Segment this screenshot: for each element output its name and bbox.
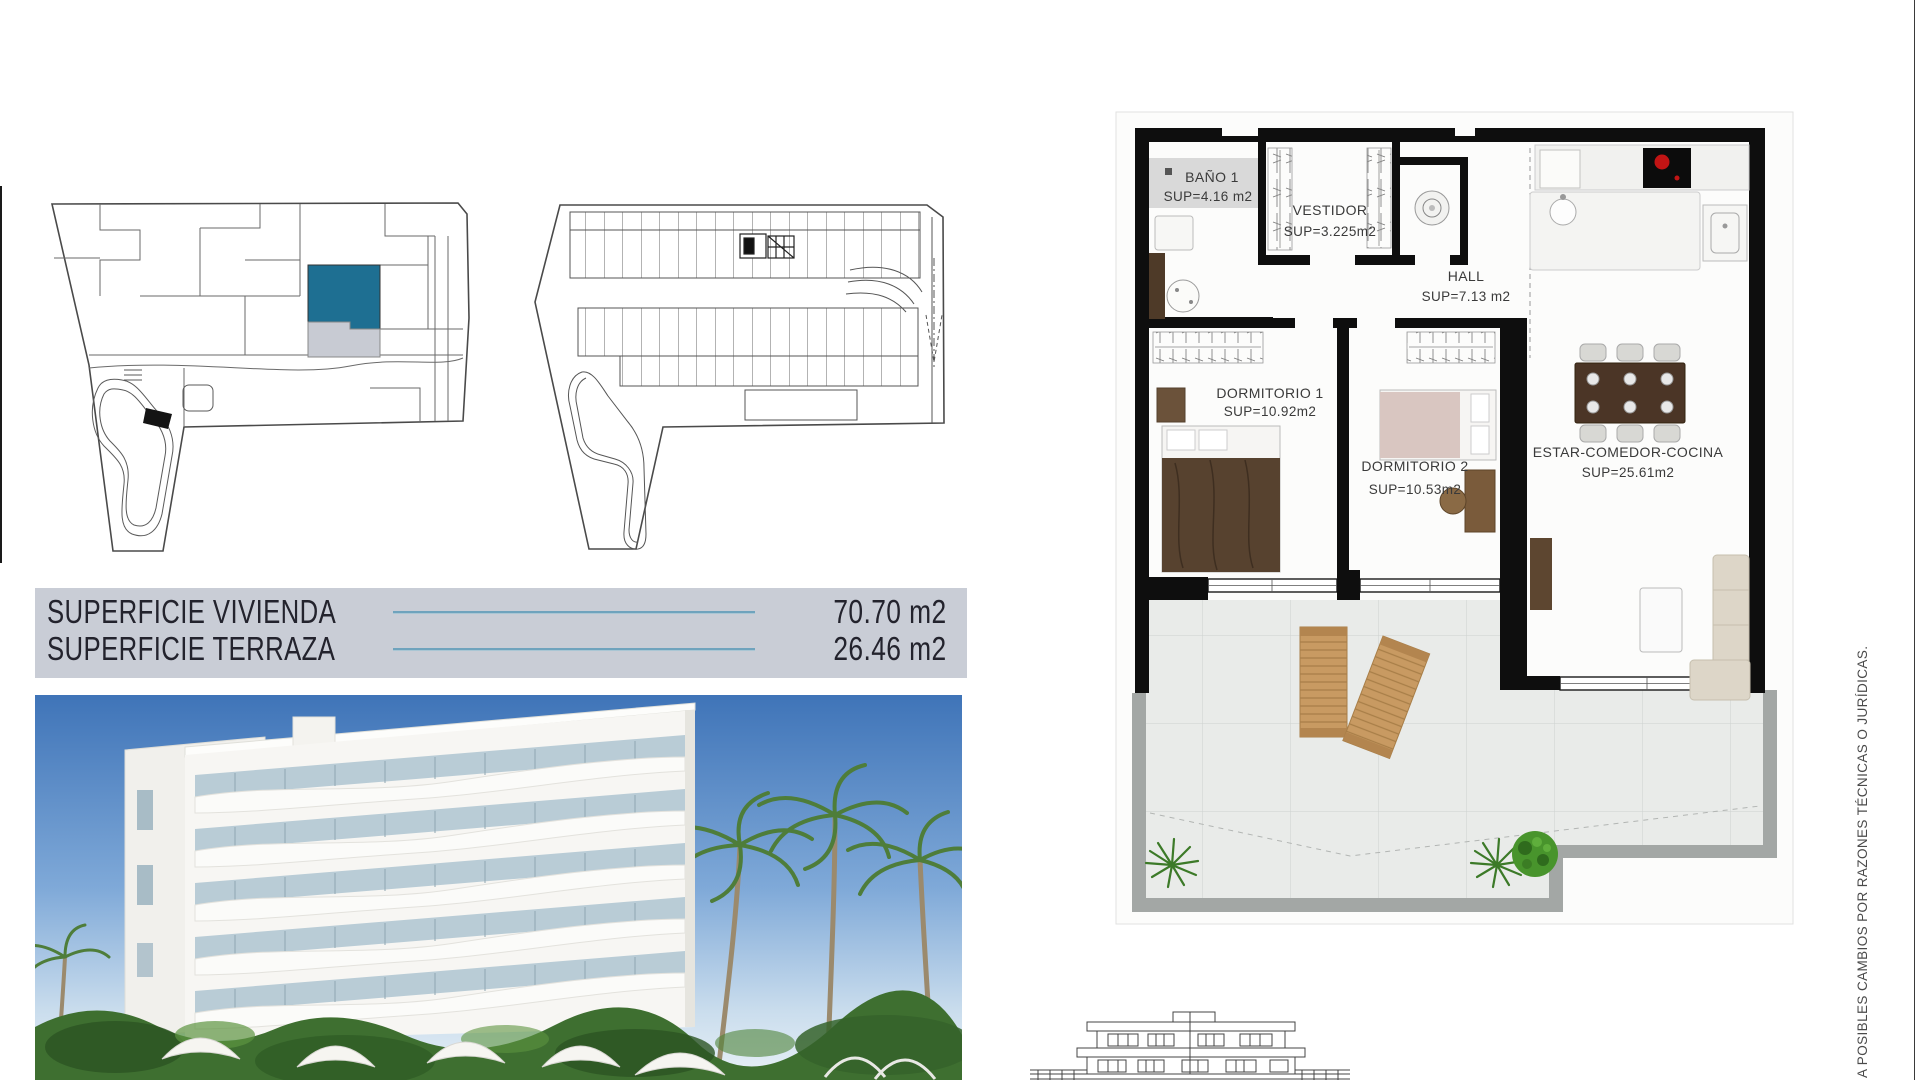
site-plan-key [40, 198, 505, 573]
dining-set [1575, 344, 1685, 442]
surface-vivienda-value: 70.70 m2 [834, 593, 947, 631]
right-border-line [1914, 0, 1915, 1080]
surface-terraza-rule [393, 648, 755, 650]
room-label-hall: HALL [1448, 268, 1485, 284]
surface-table: SUPERFICIE VIVIENDA 70.70 m2 SUPERFICIE … [35, 588, 967, 678]
floor-plan: BAÑO 1 SUP=4.16 m2 VESTIDOR SUP=3.225m2 … [1115, 108, 1795, 930]
room-sup-bano: SUP=4.16 m2 [1164, 189, 1253, 204]
highlighted-unit [308, 265, 380, 329]
room-sup-dorm2: SUP=10.53m2 [1369, 482, 1462, 497]
left-edge-line [0, 186, 2, 563]
property-photo [35, 695, 962, 1080]
room-sup-vestidor: SUP=3.225m2 [1284, 224, 1377, 239]
surface-terraza-label: SUPERFICIE TERRAZA [47, 630, 335, 668]
sun-lounger [1300, 627, 1347, 737]
legal-note: A POSIBLES CAMBIOS POR RAZONES TÉCNICAS … [1855, 646, 1870, 1078]
surface-terraza-value: 26.46 m2 [834, 630, 947, 668]
room-label-dorm2: DORMITORIO 2 [1361, 458, 1468, 474]
desk [1465, 470, 1495, 532]
elevation-drawing [1030, 1008, 1350, 1080]
apartment-building [125, 703, 695, 1041]
surface-vivienda-label: SUPERFICIE VIVIENDA [47, 593, 336, 631]
room-sup-hall: SUP=7.13 m2 [1422, 289, 1511, 304]
room-label-bano: BAÑO 1 [1185, 169, 1239, 185]
washing-machine [1415, 191, 1449, 225]
brochure-page: SUPERFICIE VIVIENDA 70.70 m2 SUPERFICIE … [0, 0, 1920, 1080]
terrace-bush [1512, 831, 1558, 877]
room-label-vestidor: VESTIDOR [1293, 202, 1368, 218]
room-label-estar: ESTAR-COMEDOR-COCINA [1533, 444, 1724, 460]
cooktop [1643, 148, 1691, 188]
tv-unit [1530, 538, 1552, 610]
site-plan-parking [530, 200, 955, 570]
stair-core [143, 408, 172, 429]
room-sup-estar: SUP=25.61m2 [1582, 465, 1675, 480]
room-sup-dorm1: SUP=10.92m2 [1224, 404, 1317, 419]
kitchen [1530, 145, 1749, 270]
room-label-dorm1: DORMITORIO 1 [1216, 385, 1323, 401]
surface-vivienda-rule [393, 611, 755, 613]
coffee-table [1640, 588, 1682, 652]
